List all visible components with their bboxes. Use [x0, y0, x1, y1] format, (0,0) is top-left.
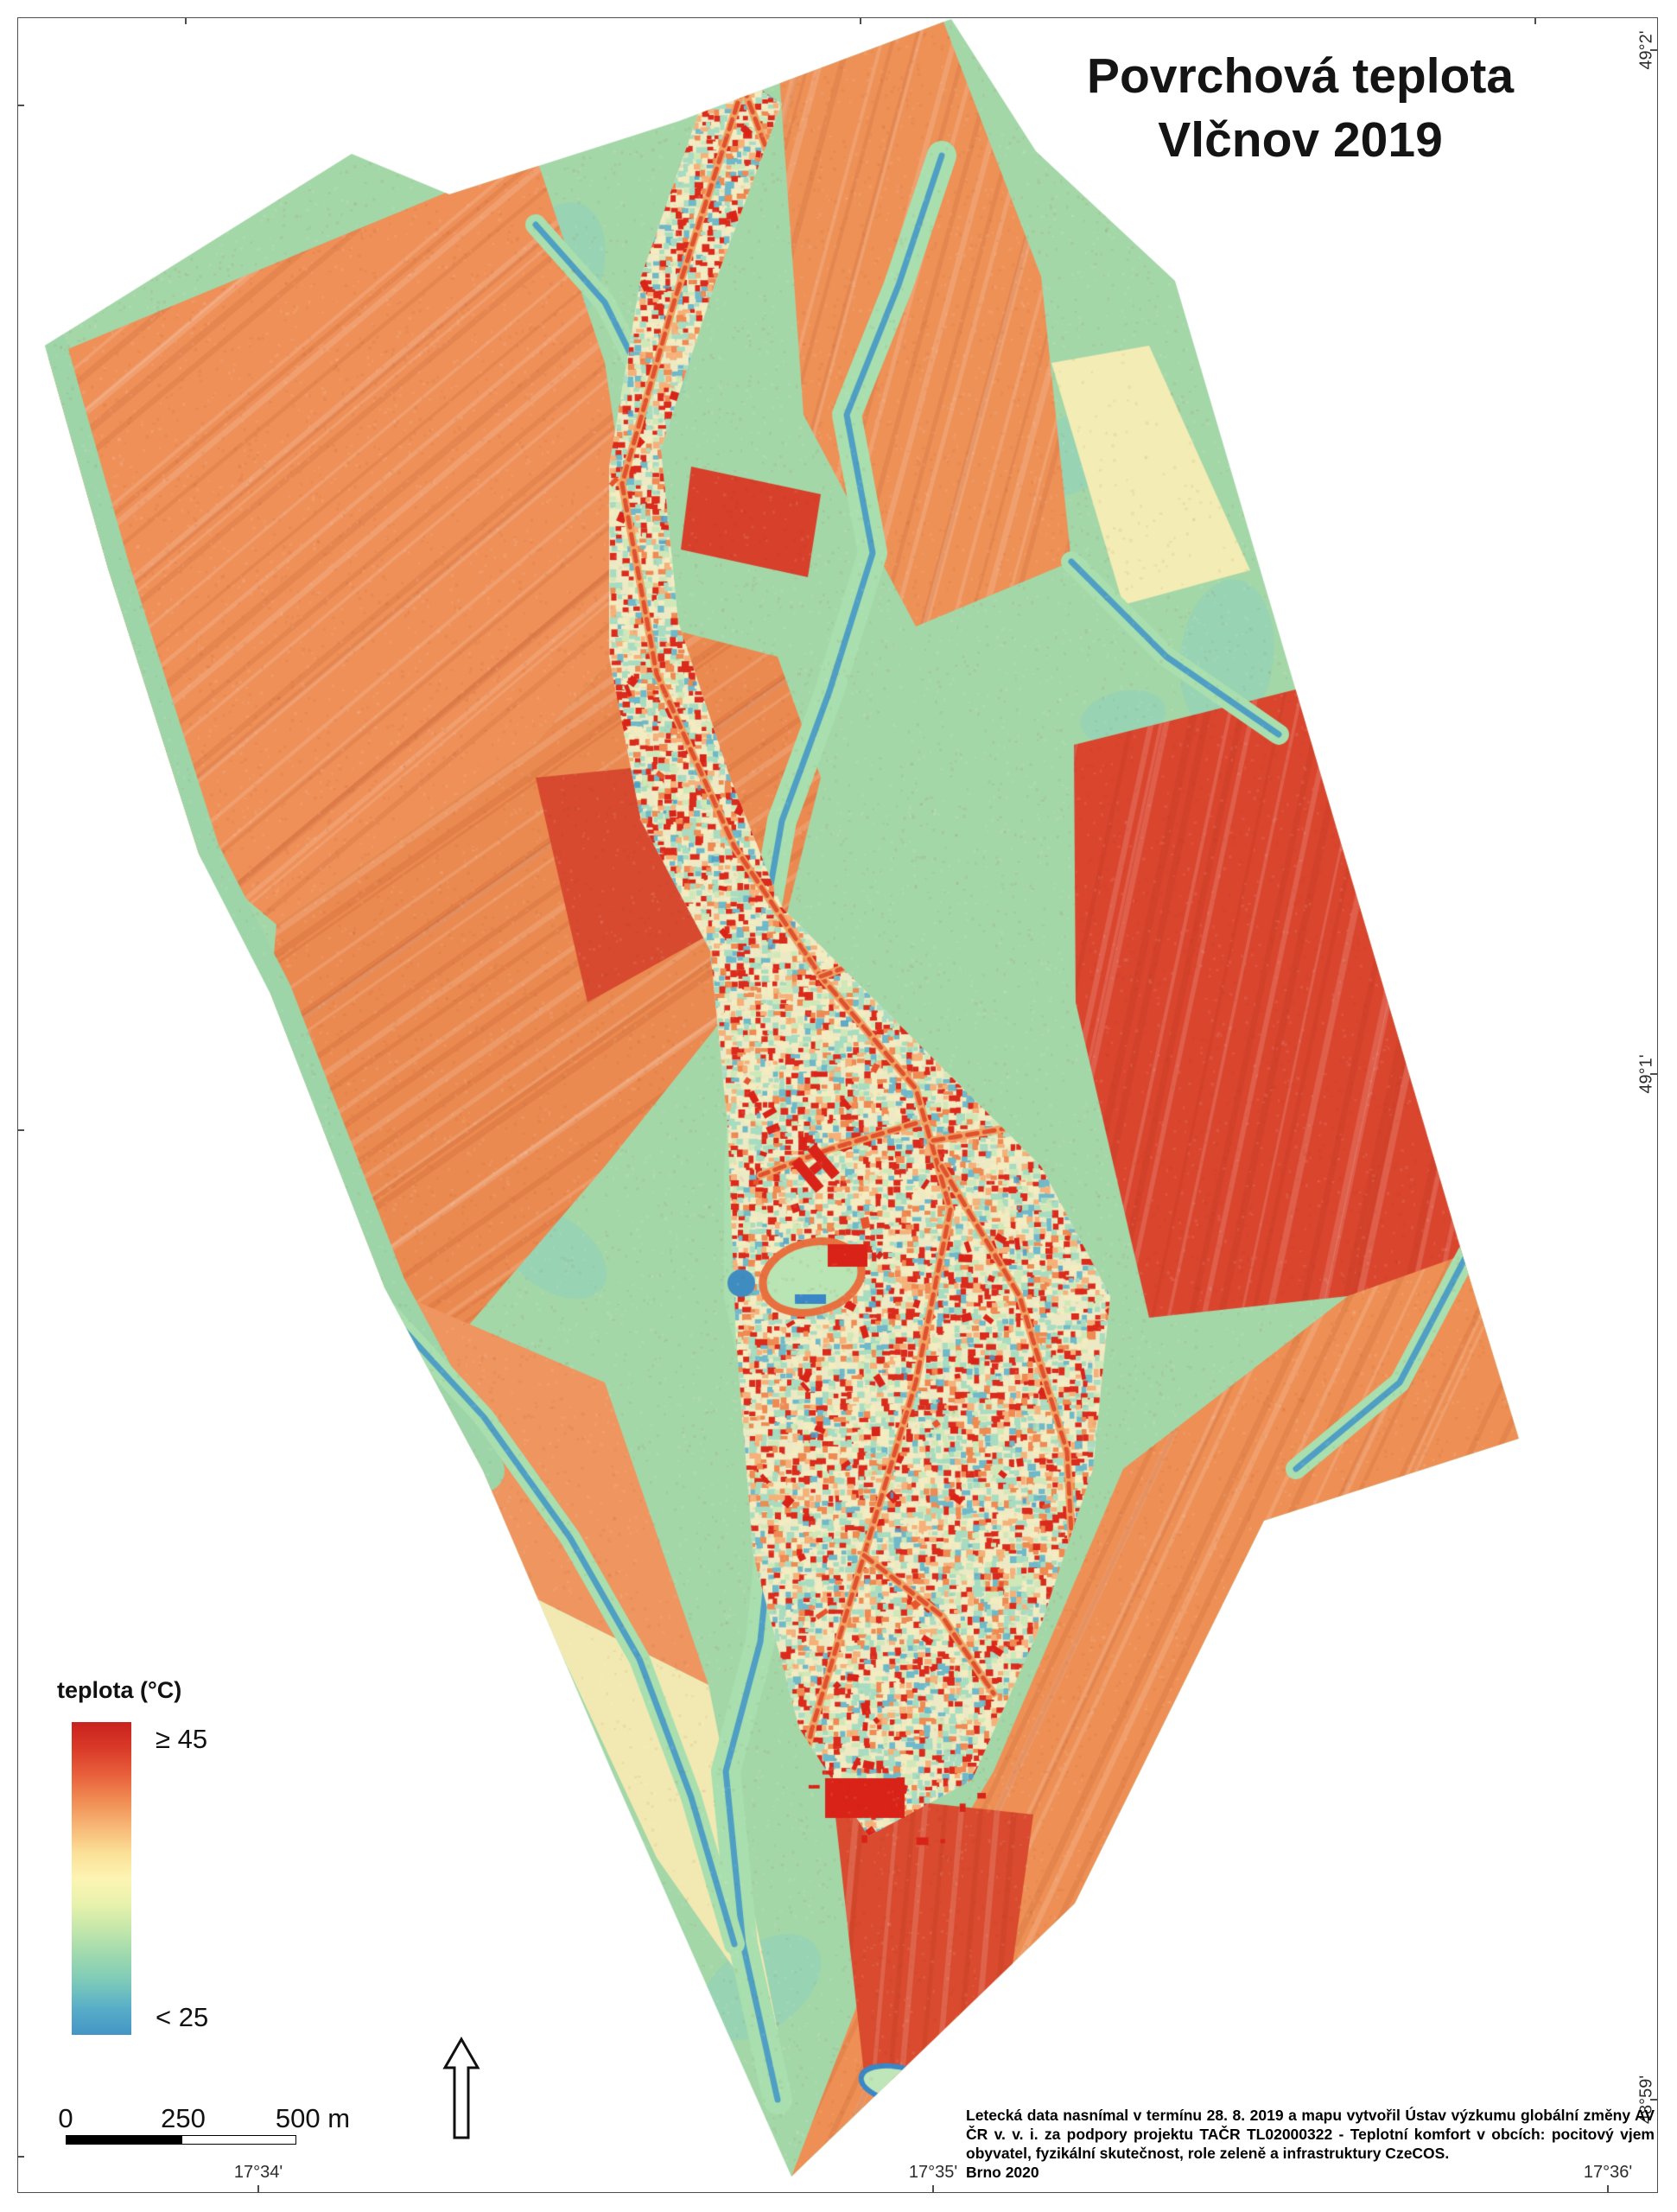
- credit-main: Letecká data nasnímal v termínu 28. 8. 2…: [966, 2106, 1655, 2163]
- page-title: Povrchová teplota Vlčnov 2019: [1020, 48, 1581, 168]
- legend-min-label: < 25: [156, 2002, 208, 2033]
- graticule-label-right-0: 49°2': [1637, 30, 1657, 69]
- graticule-tick-top-1: [860, 17, 861, 24]
- scalebar-black-segment: [66, 2135, 181, 2145]
- graticule-tick-top-2: [1534, 17, 1536, 24]
- graticule-tick-left-0: [17, 105, 24, 106]
- graticule-label-bottom-0: 17°34': [234, 2163, 283, 2183]
- page-title-line2: Vlčnov 2019: [1020, 112, 1581, 168]
- page-title-line1: Povrchová teplota: [1020, 48, 1581, 104]
- legend-max-label: ≥ 45: [156, 1724, 207, 1755]
- credit-text: Letecká data nasnímal v termínu 28. 8. 2…: [966, 2106, 1655, 2182]
- graticule-label-right-1: 49°1': [1637, 1054, 1657, 1093]
- graticule-tick-left-1: [17, 1129, 24, 1131]
- graticule-tick-top-0: [185, 17, 187, 24]
- north-arrow-icon: [435, 2036, 488, 2141]
- graticule-tick-bottom-1: [932, 2185, 934, 2192]
- legend-color-ramp: [72, 1722, 131, 2035]
- legend-title: teplota (°C): [57, 1677, 181, 1704]
- graticule-tick-bottom-2: [1607, 2185, 1609, 2192]
- scalebar-label-0: 0: [58, 2103, 73, 2134]
- graticule-label-bottom-1: 17°35': [909, 2163, 957, 2183]
- scalebar-white-segment: [181, 2135, 296, 2145]
- scalebar-label-250: 250: [161, 2103, 206, 2134]
- scalebar-label-500: 500 m: [276, 2103, 350, 2134]
- graticule-tick-left-2: [17, 2156, 24, 2158]
- graticule-tick-bottom-0: [257, 2185, 259, 2192]
- thermal-raster-image: [0, 0, 1677, 2212]
- map-sheet-page: { "title": { "line1": "Povrchová teplota…: [0, 0, 1677, 2212]
- credit-city: Brno 2020: [966, 2163, 1655, 2182]
